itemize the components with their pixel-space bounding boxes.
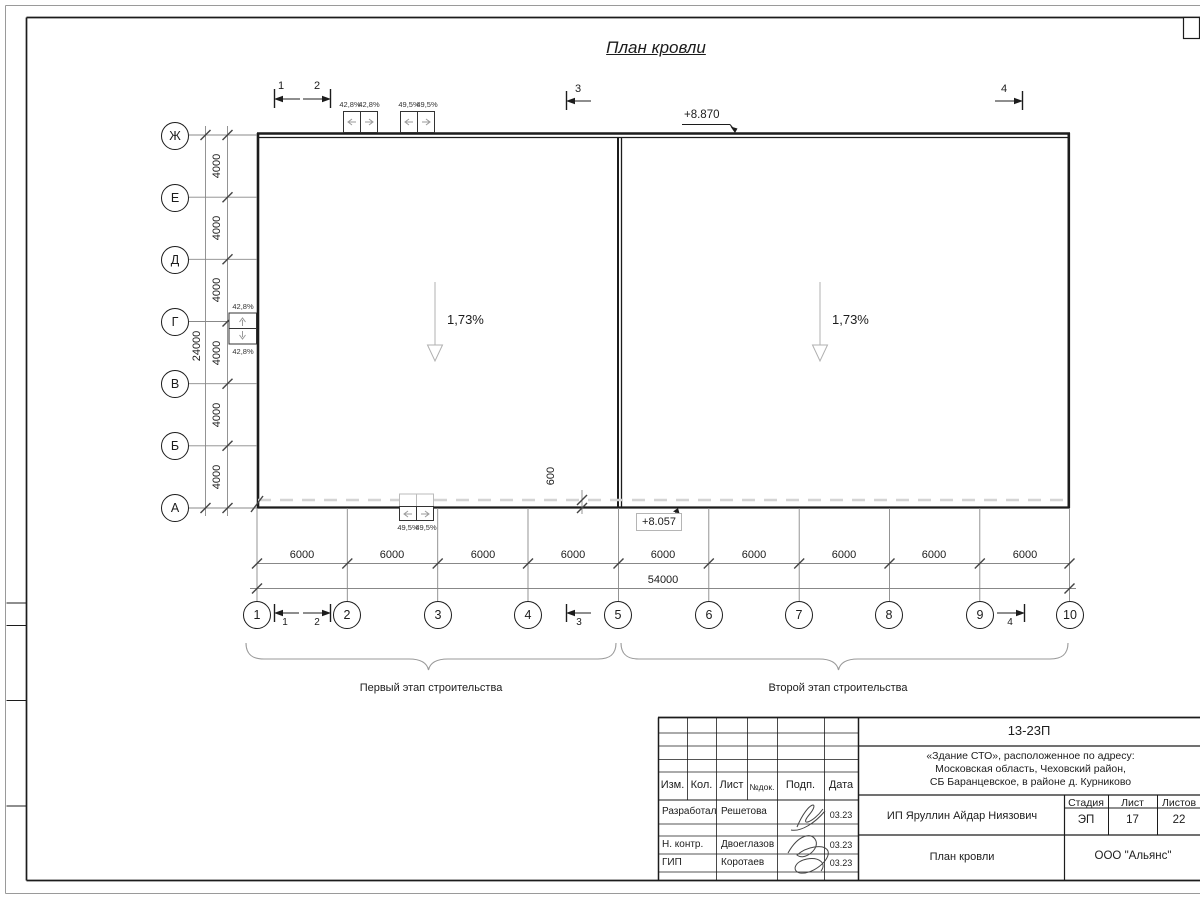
col-axis-4: 4 [514, 601, 542, 629]
titleblock-header-list: Лист [716, 779, 747, 791]
col-axis-6: 6 [695, 601, 723, 629]
funnel-label: 49,5% [411, 523, 441, 532]
sheet-title: План кровли [860, 851, 1064, 863]
slope-arrow-left [428, 282, 443, 361]
col-axis-3: 3 [424, 601, 452, 629]
stage-header: Стадия [1064, 797, 1108, 809]
row-dim: 4000 [211, 146, 223, 186]
section-mark-4-bottom: 4 [1004, 617, 1016, 628]
section-mark-3-bottom: 3 [573, 617, 585, 628]
col-total-dim: 54000 [633, 574, 693, 586]
stage-label-right: Второй этап строительства [738, 682, 938, 694]
row-dim: 4000 [211, 333, 223, 373]
role-date: 03.23 [824, 840, 858, 850]
col-axis-10: 10 [1056, 601, 1084, 629]
row-axis-a: А [161, 494, 189, 522]
row-dim: 4000 [211, 208, 223, 248]
roof-outline [257, 133, 1070, 508]
sheets-header: Листов [1157, 797, 1200, 809]
doc-number: 13-23П [858, 723, 1200, 738]
sheet-number: 17 [1108, 814, 1157, 826]
left-margin-table [7, 603, 27, 806]
row-axis-v: В [161, 370, 189, 398]
col-dim: 6000 [814, 549, 874, 561]
funnel-label: 42,8% [228, 347, 258, 356]
funnel-label: 42,8% [354, 100, 384, 109]
stage-braces [246, 643, 1068, 670]
roof-funnels-top [344, 112, 435, 133]
col-axis-5: 5 [604, 601, 632, 629]
object-address-line2: Московская область, Чеховский район, [868, 763, 1193, 775]
funnel-label: 42,8% [228, 302, 258, 311]
slope-label-left: 1,73% [447, 312, 484, 327]
row-axis-b: Б [161, 432, 189, 460]
col-axis-7: 7 [785, 601, 813, 629]
slope-arrow-right [813, 282, 828, 361]
section-marks [274, 89, 1025, 622]
titleblock-header-data: Дата [824, 779, 858, 791]
section-mark-1-top: 1 [275, 80, 287, 92]
role-label: Разработал [662, 806, 716, 817]
row-dim: 4000 [211, 395, 223, 435]
section-mark-2-top: 2 [311, 80, 323, 92]
elevation-top: +8.870 [684, 109, 720, 121]
col-dim: 6000 [362, 549, 422, 561]
client-name: ИП Яруллин Айдар Ниязович [860, 810, 1064, 822]
row-axis-d: Д [161, 246, 189, 274]
col-axis-2: 2 [333, 601, 361, 629]
col-dim: 6000 [453, 549, 513, 561]
row-total-dim: 24000 [191, 320, 203, 372]
sheet-header: Лист [1108, 797, 1157, 809]
role-name: Решетова [721, 806, 767, 817]
slope-label-right: 1,73% [832, 312, 869, 327]
signature-strokes [788, 805, 828, 873]
col-dim: 6000 [272, 549, 332, 561]
section-mark-1-bottom: 1 [279, 617, 291, 628]
elevation-bottom: +8.057 [636, 513, 682, 531]
titleblock-header-podp: Подп. [777, 779, 824, 791]
col-dim: 6000 [633, 549, 693, 561]
titleblock-header-izm: Изм. [658, 779, 687, 791]
roof-funnels-bottom [400, 494, 434, 521]
sheets-total: 22 [1157, 814, 1200, 826]
section-mark-2-bottom: 2 [311, 617, 323, 628]
col-axis-8: 8 [875, 601, 903, 629]
role-date: 03.23 [824, 858, 858, 868]
section-mark-3-top: 3 [572, 83, 584, 95]
object-address-line1: «Здание СТО», расположенное по адресу: [868, 750, 1193, 762]
drawing-sheet: План кровли Ж Е Д Г В Б А 4000 4000 4000… [0, 0, 1200, 900]
role-name: Двоеглазов [721, 839, 774, 850]
section-mark-4-top: 4 [998, 83, 1010, 95]
col-dim: 6000 [904, 549, 964, 561]
funnel-label: 49,5% [412, 100, 442, 109]
row-axis-e: Е [161, 184, 189, 212]
row-axis-g: Г [161, 308, 189, 336]
row-axis-zh: Ж [161, 122, 189, 150]
col-axis-1: 1 [243, 601, 271, 629]
col-dim: 6000 [543, 549, 603, 561]
titleblock-header-kol: Кол. [687, 779, 716, 791]
object-address-line3: СБ Баранцевское, в районе д. Курниково [868, 776, 1193, 788]
col-dim: 6000 [724, 549, 784, 561]
stage-value: ЭП [1064, 814, 1108, 826]
elevation-leaders [672, 125, 738, 520]
titleblock-header-doc: №док. [747, 782, 777, 792]
role-name: Коротаев [721, 857, 764, 868]
drawing-title: План кровли [541, 38, 771, 58]
company-name: ООО "Альянс" [1066, 850, 1200, 862]
col-axis-9: 9 [966, 601, 994, 629]
row-dim: 4000 [211, 457, 223, 497]
parapet-dim: 600 [545, 456, 557, 496]
role-label: ГИП [662, 857, 682, 868]
col-dim: 6000 [995, 549, 1055, 561]
row-dim: 4000 [211, 270, 223, 310]
stage-label-left: Первый этап строительства [331, 682, 531, 694]
role-label: Н. контр. [662, 839, 703, 850]
role-date: 03.23 [824, 810, 858, 820]
